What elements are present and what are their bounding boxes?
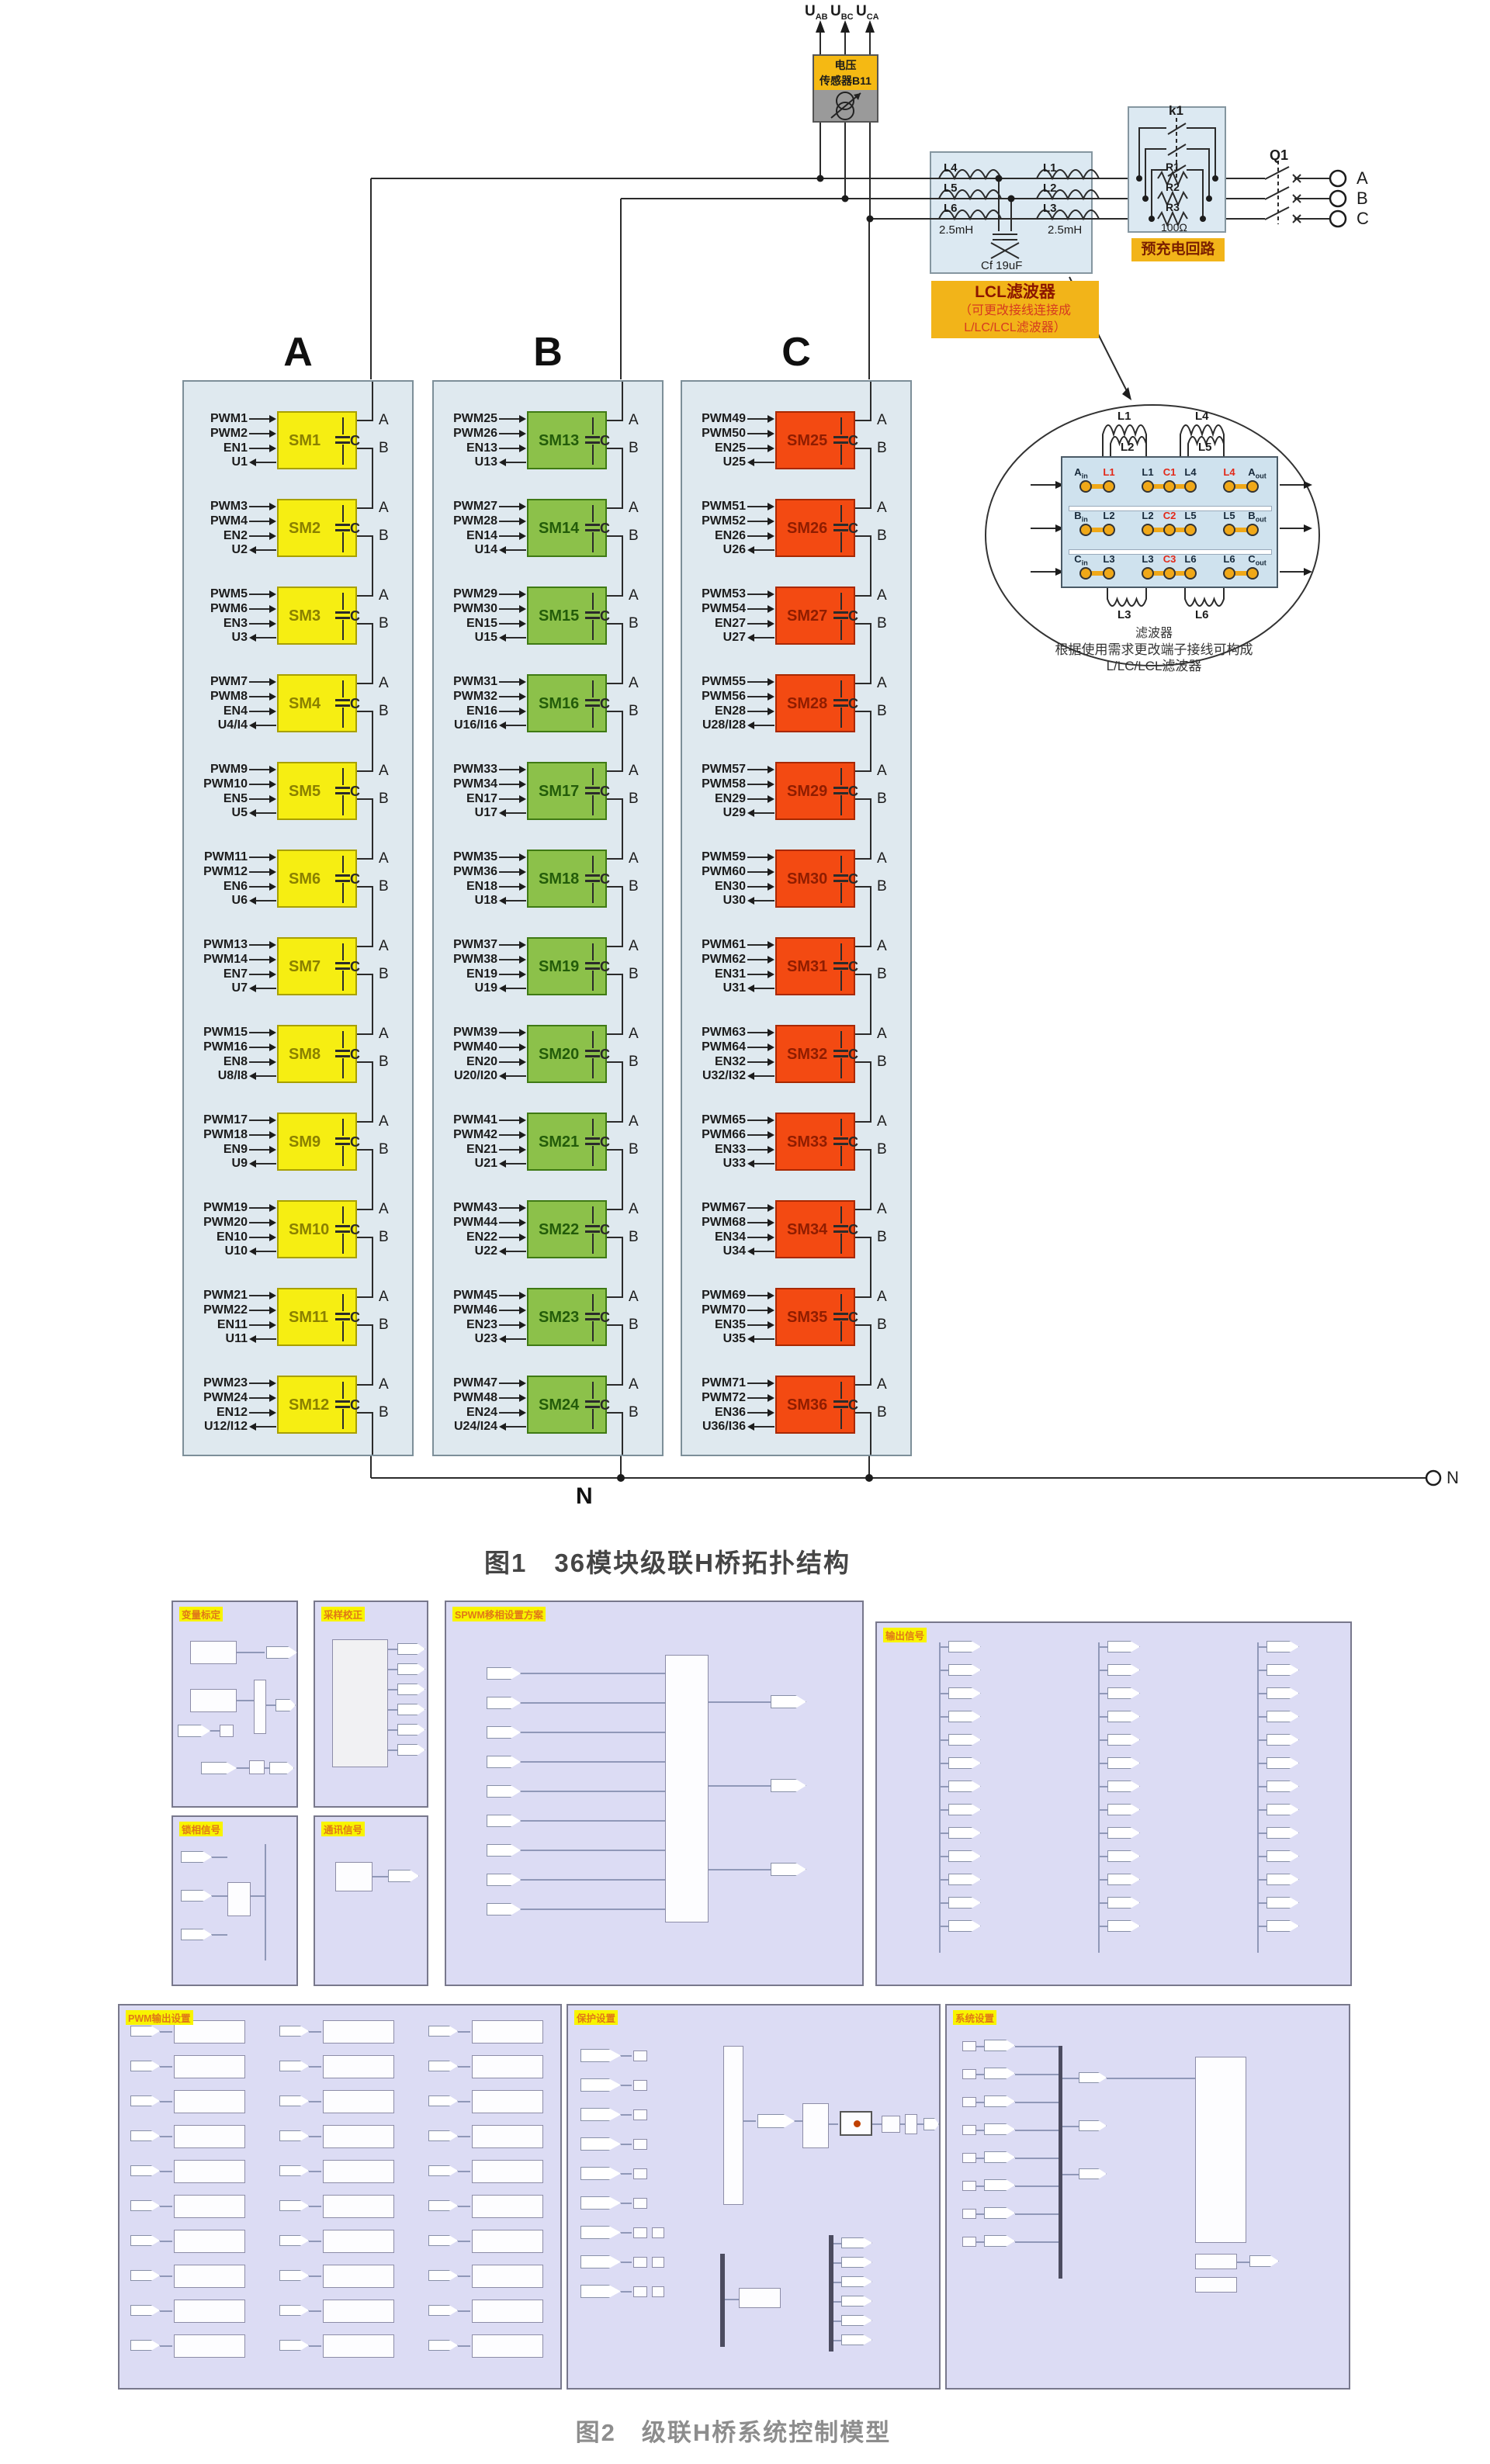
capacitor-icon xyxy=(840,1119,842,1136)
model-block xyxy=(472,2230,543,2253)
output-wire xyxy=(754,637,774,638)
sm-box-label: SM7 xyxy=(289,958,321,976)
input-arrow-icon xyxy=(269,1219,276,1227)
capacitor-icon xyxy=(592,1382,594,1399)
model-wire xyxy=(1015,2158,1059,2159)
module-terminal-a: A xyxy=(629,675,639,692)
capacitor-icon xyxy=(335,704,350,707)
capacitor-icon xyxy=(840,1409,842,1429)
input-wire xyxy=(499,1120,520,1121)
model-wire xyxy=(309,2310,321,2312)
sm-module-SM15: PWM29PWM30EN15U15SM15CAB xyxy=(434,587,665,674)
model-wire xyxy=(976,2213,984,2215)
phase-C-container: PWM49PWM50EN25U25SM25CABPWM51PWM52EN26U2… xyxy=(681,380,912,1456)
capacitor-icon xyxy=(585,967,600,970)
model-port xyxy=(130,2130,160,2141)
output-wire xyxy=(255,462,276,463)
model-wire xyxy=(941,1739,948,1741)
input-wire xyxy=(249,1222,270,1223)
dc-link-label: C xyxy=(848,1222,858,1238)
input-wire xyxy=(747,506,768,507)
input-wire xyxy=(249,433,270,434)
pwm-input-label: PWM50 xyxy=(682,427,746,441)
input-wire xyxy=(747,1237,768,1238)
pwm-input-label: PWM15 xyxy=(184,1026,248,1040)
enable-input-label: EN31 xyxy=(682,967,746,981)
model-wire xyxy=(1015,2185,1059,2187)
cascade-chain-wire xyxy=(870,974,871,1035)
terminal-a-wire xyxy=(357,420,372,421)
module-terminal-b: B xyxy=(379,440,389,457)
capacitor-icon xyxy=(592,417,594,434)
model-block xyxy=(323,2020,394,2044)
input-arrow-icon xyxy=(269,1394,276,1402)
input-arrow-icon xyxy=(519,1204,526,1212)
capacitor-icon xyxy=(592,1294,594,1311)
sm-box-SM15: SM15C xyxy=(527,587,607,645)
input-wire xyxy=(249,681,270,683)
module-output-label: U34 xyxy=(682,1244,746,1258)
model-wire xyxy=(833,2301,841,2303)
panel-label: 系统设置 xyxy=(953,2010,996,2025)
module-terminal-b: B xyxy=(629,1054,639,1071)
input-wire xyxy=(499,1149,520,1151)
model-wire xyxy=(309,2275,321,2277)
capacitor-icon xyxy=(833,792,848,794)
module-terminal-a: A xyxy=(877,763,887,780)
dc-link-label: C xyxy=(600,1397,610,1414)
model-port xyxy=(397,1744,425,1756)
model-wire xyxy=(1015,2130,1059,2131)
input-wire xyxy=(249,1397,270,1399)
cascade-chain-wire xyxy=(622,1324,623,1386)
dc-link-label: C xyxy=(350,608,360,625)
input-wire xyxy=(499,1047,520,1048)
capacitor-icon xyxy=(592,1031,594,1048)
input-wire xyxy=(499,1383,520,1384)
pwm-input-label: PWM20 xyxy=(184,1216,248,1230)
cascade-chain-wire xyxy=(622,1412,623,1455)
cascade-chain-wire xyxy=(622,1237,623,1298)
enable-input-label: EN25 xyxy=(682,441,746,455)
pwm-input-label: PWM61 xyxy=(682,938,746,952)
capacitor-icon xyxy=(833,874,848,877)
model-wire xyxy=(1100,1926,1107,1927)
pwm-input-label: PWM9 xyxy=(184,763,248,777)
input-arrow-icon xyxy=(768,1029,774,1036)
model-wire xyxy=(941,1716,948,1718)
pwm-input-label: PWM1 xyxy=(184,412,248,426)
model-wire xyxy=(829,2123,838,2125)
input-wire xyxy=(499,1397,520,1399)
sm-module-SM26: PWM51PWM52EN26U26SM26CAB xyxy=(682,499,913,587)
pwm-input-label: PWM13 xyxy=(184,938,248,952)
pwm-input-label: PWM35 xyxy=(434,850,497,864)
model-wire xyxy=(941,1786,948,1787)
model-block xyxy=(633,2198,647,2209)
model-wire xyxy=(1015,2046,1059,2047)
sm-box-label: SM13 xyxy=(539,432,579,450)
input-wire xyxy=(499,696,520,697)
module-terminal-a: A xyxy=(629,1289,639,1306)
model-port xyxy=(279,2061,309,2071)
terminal-dot xyxy=(1184,524,1197,536)
model-wire xyxy=(458,2275,470,2277)
model-port xyxy=(757,2114,795,2128)
input-arrow-icon xyxy=(768,590,774,598)
dc-link-label: C xyxy=(350,784,360,800)
panel-spwm-scheme: SPWM移相设置方案 xyxy=(445,1601,864,1986)
pwm-input-label: PWM54 xyxy=(682,602,746,616)
capacitor-icon xyxy=(335,1137,350,1140)
board-terminal-label: C2 xyxy=(1163,510,1176,521)
capacitor-icon xyxy=(585,792,600,794)
model-port xyxy=(279,2340,309,2351)
module-terminal-b: B xyxy=(629,791,639,808)
module-terminal-a: A xyxy=(877,938,887,955)
capacitor-icon xyxy=(585,787,600,789)
capacitor-icon xyxy=(342,708,344,728)
model-port xyxy=(397,1643,425,1655)
input-wire xyxy=(249,1295,270,1296)
input-wire xyxy=(249,1237,270,1238)
model-wire xyxy=(160,2136,172,2137)
capacitor-icon xyxy=(335,1406,350,1408)
capacitor-icon xyxy=(342,532,344,552)
model-port xyxy=(487,1756,521,1768)
model-wire xyxy=(521,1702,665,1704)
model-block xyxy=(882,2116,900,2133)
sm-module-SM12: PWM23PWM24EN12U12/I12SM12CAB xyxy=(184,1376,415,1463)
sm-box-SM3: SM3C xyxy=(277,587,357,645)
cascade-chain-wire xyxy=(372,711,373,772)
terminal-a-wire xyxy=(607,858,622,860)
dc-link-label: C xyxy=(350,521,360,537)
contactor-label: k1 xyxy=(1169,103,1183,119)
sm-box-SM32: SM32C xyxy=(775,1025,855,1083)
model-port xyxy=(1266,1897,1299,1909)
sm-module-SM17: PWM33PWM34EN17U17SM17CAB xyxy=(434,762,665,850)
sm-module-SM29: PWM57PWM58EN29U29SM29CAB xyxy=(682,762,913,850)
dc-link-label: C xyxy=(600,608,610,625)
pwm-input-label: PWM43 xyxy=(434,1201,497,1215)
capacitor-icon xyxy=(840,417,842,434)
enable-input-label: EN29 xyxy=(682,792,746,806)
sm-box-SM7: SM7C xyxy=(277,937,357,995)
model-port xyxy=(1107,1711,1140,1722)
input-wire xyxy=(747,1397,768,1399)
resistor-label-r2: R2 xyxy=(1166,181,1180,193)
terminal-a-wire xyxy=(855,770,871,772)
sm-box-SM4: SM4C xyxy=(277,674,357,732)
input-arrow-icon xyxy=(519,678,526,686)
module-terminal-a: A xyxy=(379,1201,389,1218)
cascade-chain-wire xyxy=(870,1149,871,1210)
capacitor-icon xyxy=(592,680,594,697)
output-wire xyxy=(505,637,526,638)
terminal-a-wire xyxy=(357,1209,372,1210)
enable-input-label: EN3 xyxy=(184,617,248,631)
terminal-a-wire xyxy=(357,683,372,684)
capacitor-icon xyxy=(585,1230,600,1233)
model-block xyxy=(723,2046,743,2205)
enable-input-label: EN23 xyxy=(434,1318,497,1332)
model-port xyxy=(771,1863,806,1876)
model-wire xyxy=(160,2171,172,2172)
capacitor-icon xyxy=(840,1031,842,1048)
input-wire xyxy=(499,1324,520,1326)
output-wire xyxy=(754,725,774,726)
model-port xyxy=(275,1699,296,1711)
model-wire xyxy=(1100,1856,1107,1857)
pwm-input-label: PWM11 xyxy=(184,850,248,864)
capacitor-icon xyxy=(335,962,350,964)
resistance-value: 100Ω xyxy=(1161,221,1187,234)
board-terminal-label: L2 xyxy=(1103,510,1114,521)
sm-box-label: SM16 xyxy=(539,695,579,713)
dc-link-label: C xyxy=(600,784,610,800)
model-block xyxy=(962,2041,976,2051)
enable-input-label: EN26 xyxy=(682,529,746,543)
capacitor-icon xyxy=(592,1234,594,1254)
input-wire xyxy=(249,1134,270,1136)
sm-module-SM2: PWM3PWM4EN2U2SM2CAB xyxy=(184,499,415,587)
model-wire xyxy=(833,2282,841,2283)
cascade-chain-wire xyxy=(870,1324,871,1386)
dc-link-label: C xyxy=(848,1310,858,1326)
capacitor-icon xyxy=(585,1143,600,1145)
input-arrow-icon xyxy=(519,941,526,949)
module-output-label: U30 xyxy=(682,894,746,908)
module-output-label: U24/I24 xyxy=(434,1420,497,1434)
module-terminal-b: B xyxy=(877,791,887,808)
enable-input-label: EN32 xyxy=(682,1055,746,1069)
model-wire xyxy=(458,2310,470,2312)
capacitor-icon xyxy=(840,1382,842,1399)
model-wire xyxy=(941,1763,948,1764)
sm-box-label: SM1 xyxy=(289,432,321,450)
model-wire xyxy=(309,2031,321,2033)
model-block xyxy=(633,2050,647,2061)
enable-input-label: EN34 xyxy=(682,1230,746,1244)
model-wire xyxy=(1100,1693,1107,1694)
module-output-label: U9 xyxy=(184,1157,248,1171)
model-port xyxy=(1107,1664,1140,1676)
model-port xyxy=(1266,1711,1299,1722)
dc-link-label: C xyxy=(848,1134,858,1151)
input-arrow-icon xyxy=(269,1409,276,1417)
model-wire xyxy=(1259,1926,1266,1927)
terminal-dot xyxy=(1103,480,1115,493)
model-port xyxy=(1266,1687,1299,1699)
cascade-chain-wire xyxy=(870,1412,871,1455)
input-wire xyxy=(249,871,270,873)
sm-box-label: SM4 xyxy=(289,695,321,713)
model-wire xyxy=(621,2203,632,2204)
model-wire xyxy=(941,1693,948,1694)
module-terminal-b: B xyxy=(629,703,639,720)
input-arrow-icon xyxy=(519,503,526,510)
model-port xyxy=(1266,1781,1299,1792)
terminal-dot xyxy=(1103,524,1115,536)
model-block xyxy=(323,2160,394,2183)
model-wire xyxy=(1015,2213,1059,2215)
sm-module-SM3: PWM5PWM6EN3U3SM3CAB xyxy=(184,587,415,674)
capacitor-icon xyxy=(342,1234,344,1254)
pwm-input-label: PWM3 xyxy=(184,500,248,514)
cascade-chain-wire xyxy=(372,798,373,860)
cascade-chain-wire xyxy=(870,711,871,772)
model-port xyxy=(984,2068,1015,2079)
capacitor-icon xyxy=(840,593,842,610)
capacitor-icon xyxy=(342,1409,344,1429)
sm-box-SM10: SM10C xyxy=(277,1200,357,1258)
model-wire xyxy=(521,1673,665,1674)
sm-box-SM5: SM5C xyxy=(277,762,357,820)
output-wire xyxy=(505,462,526,463)
model-block xyxy=(472,2195,543,2218)
input-arrow-icon xyxy=(269,1379,276,1387)
model-wire xyxy=(458,2241,470,2242)
model-port xyxy=(1266,1641,1299,1652)
sm-box-label: SM19 xyxy=(539,958,579,976)
model-wire xyxy=(309,2171,321,2172)
model-block xyxy=(472,2160,543,2183)
sm-box-label: SM15 xyxy=(539,607,579,625)
pwm-input-label: PWM10 xyxy=(184,777,248,791)
sm-module-SM24: PWM47PWM48EN24U24/I24SM24CAB xyxy=(434,1376,665,1463)
input-arrow-icon xyxy=(519,1394,526,1402)
capacitor-icon xyxy=(335,874,350,877)
output-wire xyxy=(255,988,276,989)
phase-C-header: C xyxy=(681,329,912,375)
capacitor-icon xyxy=(840,1206,842,1223)
module-terminal-a: A xyxy=(877,1113,887,1130)
model-wire xyxy=(458,2031,470,2033)
board-terminal-label: L3 xyxy=(1103,553,1114,565)
model-port xyxy=(1266,1827,1299,1839)
page: 电压 传感器B11 UAB UBC UCA L4 L5 L6 L1 L2 L3 … xyxy=(0,0,1490,2464)
cascade-chain-wire xyxy=(372,1237,373,1298)
dc-link-label: C xyxy=(848,1397,858,1414)
pwm-input-label: PWM29 xyxy=(434,587,497,601)
capacitor-icon xyxy=(840,708,842,728)
panel-label: SPWM移相设置方案 xyxy=(452,1607,546,1621)
module-terminal-a: A xyxy=(629,500,639,517)
phase-A-header: A xyxy=(182,329,414,375)
model-port xyxy=(948,1804,981,1815)
sm-module-SM7: PWM13PWM14EN7U7SM7CAB xyxy=(184,937,415,1025)
terminal-a-wire xyxy=(357,946,372,947)
module-terminal-a: A xyxy=(379,1113,389,1130)
model-wire xyxy=(709,1869,771,1870)
model-wire xyxy=(372,1876,388,1877)
capacitor-icon xyxy=(592,883,594,903)
capacitor-icon xyxy=(335,792,350,794)
pwm-input-label: PWM32 xyxy=(434,690,497,704)
pwm-input-label: PWM47 xyxy=(434,1376,497,1390)
capacitor-icon xyxy=(342,1146,344,1166)
input-arrow-icon xyxy=(768,1306,774,1314)
model-block xyxy=(633,2227,647,2238)
pwm-input-label: PWM14 xyxy=(184,953,248,967)
enable-input-label: EN30 xyxy=(682,880,746,894)
pwm-input-label: PWM66 xyxy=(682,1128,746,1142)
terminal-dot xyxy=(1079,480,1092,493)
terminal-a-wire xyxy=(357,770,372,772)
model-wire xyxy=(309,2206,321,2207)
input-wire xyxy=(747,857,768,858)
capacitor-icon xyxy=(335,1400,350,1403)
output-wire xyxy=(505,549,526,551)
figure1-caption: 图1 36模块级联H桥拓扑结构 xyxy=(357,1542,978,1580)
voltage-sensor: 电压 传感器B11 xyxy=(813,54,878,123)
model-block xyxy=(633,2109,647,2120)
model-wire xyxy=(458,2066,470,2068)
terminal-dot xyxy=(1142,567,1154,580)
model-port xyxy=(948,1920,981,1932)
capacitor-icon xyxy=(840,883,842,903)
precharge-tag: 预充电回路 xyxy=(1131,238,1225,261)
input-arrow-icon xyxy=(269,415,276,423)
module-terminal-b: B xyxy=(877,528,887,545)
model-port xyxy=(1107,1897,1140,1909)
input-wire xyxy=(747,959,768,960)
model-block xyxy=(323,2265,394,2288)
capacitor-icon xyxy=(840,445,842,465)
model-port xyxy=(1266,1734,1299,1746)
input-arrow-icon xyxy=(768,853,774,861)
model-port xyxy=(178,1725,210,1737)
model-port xyxy=(580,2049,621,2062)
input-wire xyxy=(499,681,520,683)
pwm-input-label: PWM21 xyxy=(184,1289,248,1303)
capacitor-icon xyxy=(833,1406,848,1408)
capacitor-icon xyxy=(585,699,600,701)
model-wire xyxy=(709,1785,771,1787)
capacitor-icon xyxy=(833,611,848,614)
model-port xyxy=(580,2167,621,2180)
model-block xyxy=(962,2181,976,2191)
input-arrow-icon xyxy=(269,883,276,891)
output-wire xyxy=(754,462,774,463)
module-output-label: U28/I28 xyxy=(682,718,746,732)
sm-box-SM18: SM18C xyxy=(527,850,607,908)
capacitor-icon xyxy=(585,1137,600,1140)
dc-link-label: C xyxy=(600,871,610,888)
sm-box-SM9: SM9C xyxy=(277,1113,357,1171)
model-wire xyxy=(941,1670,948,1671)
module-output-label: U6 xyxy=(184,894,248,908)
model-port xyxy=(130,2270,160,2281)
pwm-input-label: PWM28 xyxy=(434,514,497,528)
pwm-input-label: PWM23 xyxy=(184,1376,248,1390)
model-block xyxy=(323,2334,394,2358)
model-block xyxy=(472,2300,543,2323)
input-arrow-icon xyxy=(768,1292,774,1299)
module-output-label: U33 xyxy=(682,1157,746,1171)
module-terminal-a: A xyxy=(379,587,389,604)
capacitor-icon xyxy=(833,880,848,882)
pwm-input-label: PWM64 xyxy=(682,1040,746,1054)
module-terminal-a: A xyxy=(877,1289,887,1306)
model-wire xyxy=(309,2101,321,2102)
sm-box-label: SM18 xyxy=(539,870,579,888)
terminal-a-wire xyxy=(607,420,622,421)
input-arrow-icon xyxy=(519,445,526,452)
filter-terminal-board: AinL1L1C1L4L4AoutBinL2L2C2L5L5BoutCinL3L… xyxy=(1061,456,1278,588)
cascade-chain-wire xyxy=(372,886,373,947)
